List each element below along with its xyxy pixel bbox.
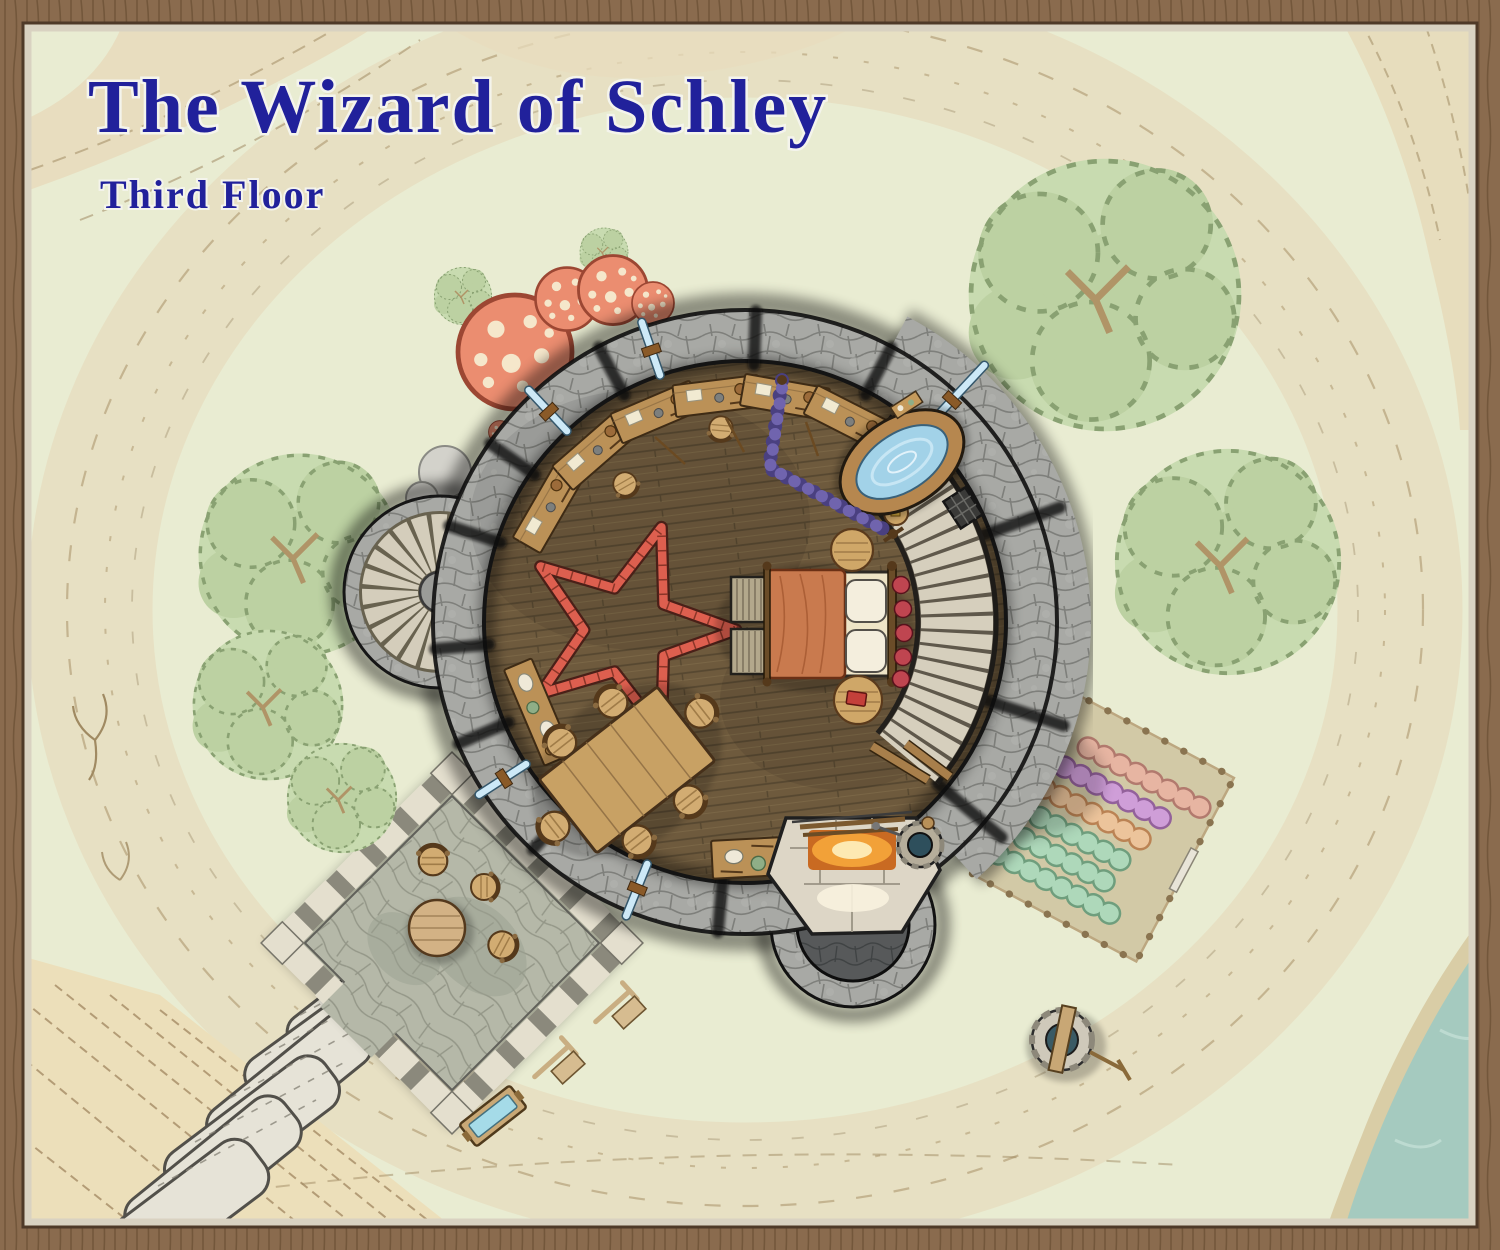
map-title: The Wizard of Schley <box>88 65 828 149</box>
pillow <box>846 630 886 672</box>
patio-table <box>406 900 474 964</box>
green-bowl <box>751 856 766 871</box>
bed <box>715 561 915 692</box>
skull <box>725 849 744 864</box>
footboard <box>764 566 770 682</box>
red-book <box>846 691 867 707</box>
ladle <box>872 822 880 830</box>
fire <box>832 841 872 859</box>
map-canvas: The Wizard of Schley Third Floor <box>0 0 1500 1250</box>
book-stool <box>834 676 882 724</box>
round-side-table <box>831 529 873 571</box>
map-subtitle: Third Floor <box>100 172 325 217</box>
map-page: The Wizard of Schley Third Floor <box>0 0 1500 1250</box>
pillow <box>846 580 886 622</box>
